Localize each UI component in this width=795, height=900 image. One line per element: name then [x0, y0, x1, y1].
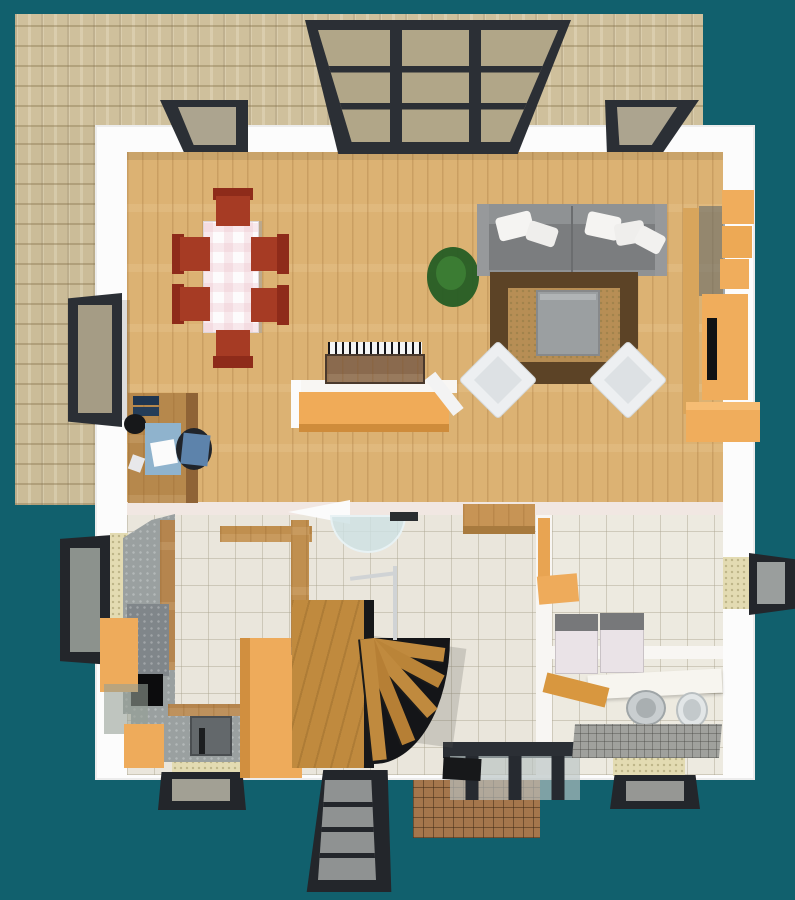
dining-chair-south-back	[213, 356, 253, 368]
dining-chair-west2-seat	[180, 287, 210, 321]
floorplan-render	[0, 0, 795, 900]
kitchen-faucet	[199, 728, 205, 754]
plant-foliage-inner	[436, 256, 466, 290]
wallunit-low-cabinet-top	[686, 402, 760, 410]
stairs-upper-flight	[292, 600, 370, 768]
sofa-armrest-left	[477, 204, 489, 276]
sofa-split-line	[571, 206, 573, 272]
stairs-bottom-mat	[442, 757, 481, 781]
piano-body	[325, 354, 425, 384]
dining-chair-west1-seat	[180, 237, 210, 271]
hall-basin-faucet	[390, 512, 418, 521]
console-sideboard-edge	[299, 424, 449, 432]
desk-chair-seat	[180, 433, 210, 467]
kitchen-cabinet-left-2	[124, 724, 164, 768]
dining-chair-east1-back	[277, 234, 289, 274]
wallunit-cabinet-1	[722, 190, 754, 224]
desk-books-1	[133, 396, 159, 405]
laundry-door-frame	[538, 518, 550, 578]
coffee-table-top-glint	[540, 294, 596, 300]
bath-shower-floor	[572, 724, 722, 758]
bath-round-sink-bowl	[636, 698, 656, 718]
entry-door-glass	[318, 780, 376, 880]
washer-control-top	[555, 614, 598, 631]
window-bottom-kitchen-glass	[172, 779, 230, 801]
stairs-railing-vertical	[393, 566, 397, 640]
kitchen-tall-cabinet-right-edge	[240, 638, 250, 778]
bath-toilet-bowl	[683, 699, 701, 721]
wallunit-cabinet-2	[722, 226, 752, 258]
window-left-kitchen-glass	[70, 548, 100, 652]
dining-chair-east2-back	[277, 285, 289, 325]
laundry-door-open	[537, 573, 579, 604]
wallunit-back-panel	[683, 208, 699, 414]
kitchen-tall-cabinet-left	[100, 618, 138, 692]
dining-chair-north-seat	[216, 196, 250, 226]
desk-paper	[150, 439, 178, 467]
window-left-living-glass	[78, 305, 112, 413]
window-right-laundry-sill	[723, 557, 749, 609]
wallunit-tv-screen	[707, 318, 717, 380]
window-bottom-bath-glass	[626, 781, 684, 801]
window-right-laundry-glass	[757, 562, 785, 604]
wall-living-hall	[127, 502, 723, 515]
hall-cabinet-front	[463, 526, 535, 534]
desk-lamp	[124, 414, 146, 434]
kitchen-sink	[190, 716, 232, 756]
wallunit-cabinet-3	[720, 259, 749, 289]
dryer-control-top	[600, 613, 644, 630]
